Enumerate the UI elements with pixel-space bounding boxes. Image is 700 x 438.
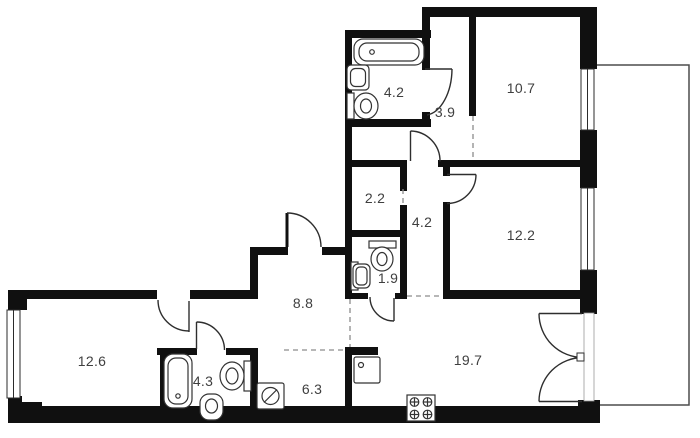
balcony-french-doors [539,314,584,402]
bathtub-icon [164,354,192,408]
window [581,69,594,130]
room-area-label: 10.7 [507,80,535,96]
entrance-door-swing [287,213,321,247]
floor-plan: 4.2 3.9 10.7 2.2 4.2 12.2 1.9 8.8 12.6 4… [0,0,700,438]
washing-machine-icon [257,383,284,409]
sink-icon [220,361,251,391]
sink-icon [347,65,369,90]
interior-walls [157,17,583,408]
room-area-label: 19.7 [454,352,482,368]
toilet-icon [369,241,396,271]
door-swing [370,297,394,321]
toilet-icon [200,394,223,420]
door-swing [197,322,225,350]
sink-icon [351,262,370,290]
floor-plan-drawing [0,0,700,438]
door-swing [158,300,189,332]
room-area-label: 1.9 [378,270,398,286]
room-area-label: 4.3 [193,373,213,389]
room-area-label: 2.2 [365,190,385,206]
bathtub-icon [354,39,424,65]
balcony-door-sill [584,313,594,401]
window [581,188,594,270]
door-swing [447,175,476,204]
room-area-label: 12.6 [78,353,106,369]
balcony-outline [597,65,689,405]
stove-icon [407,395,435,421]
room-area-label: 4.2 [384,84,404,100]
toilet-icon [347,93,378,119]
kitchen-sink-icon [354,357,380,383]
room-area-label: 6.3 [302,381,322,397]
room-area-label: 4.2 [412,214,432,230]
window [7,310,20,398]
room-area-label: 3.9 [435,104,455,120]
room-area-label: 12.2 [507,227,535,243]
room-area-label: 8.8 [293,295,313,311]
door-swing [411,131,441,162]
